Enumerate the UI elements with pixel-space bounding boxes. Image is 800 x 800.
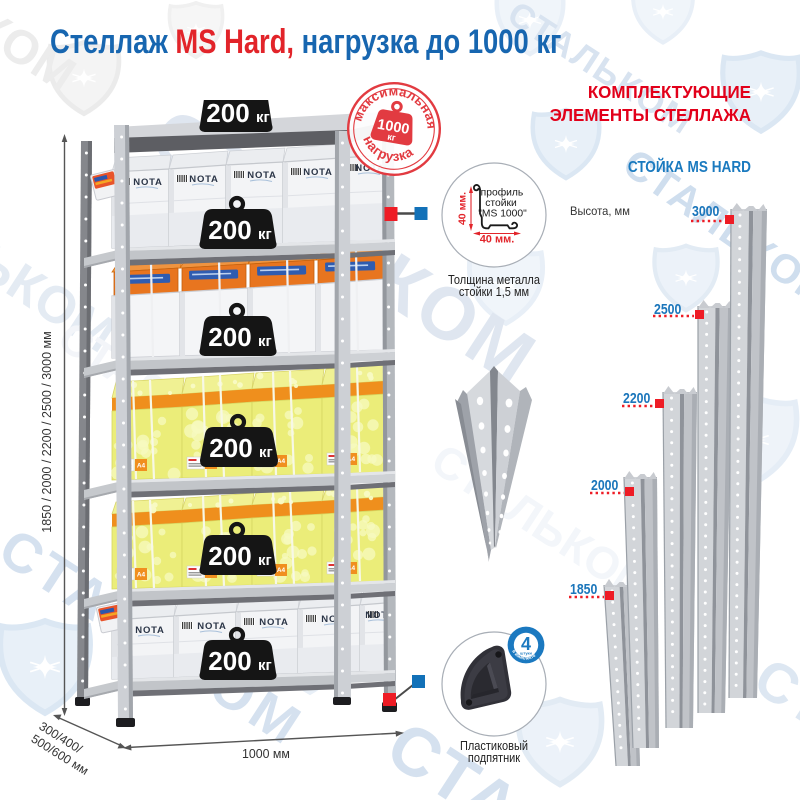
svg-text:кг: кг — [258, 333, 272, 350]
svg-text:профиль: профиль — [481, 187, 524, 199]
svg-text:NOTA: NOTA — [303, 167, 332, 178]
svg-text:кг: кг — [259, 444, 273, 461]
svg-text:"MS 1000": "MS 1000" — [478, 209, 527, 220]
svg-text:200: 200 — [206, 100, 249, 128]
svg-text:NOTA: NOTA — [197, 621, 226, 632]
svg-text:200: 200 — [208, 215, 251, 245]
svg-text:кг: кг — [258, 552, 272, 569]
svg-text:200: 200 — [208, 541, 251, 571]
svg-text:200: 200 — [208, 322, 251, 352]
svg-text:NOTA: NOTA — [189, 174, 218, 185]
svg-text:200: 200 — [208, 646, 251, 676]
svg-text:40 мм.: 40 мм. — [480, 234, 515, 246]
svg-text:А4: А4 — [277, 458, 286, 465]
svg-text:NOTA: NOTA — [135, 625, 164, 636]
svg-text:стойки: стойки — [485, 198, 517, 209]
svg-text:кг: кг — [258, 657, 272, 674]
svg-text:NOTA: NOTA — [133, 177, 162, 188]
svg-text:NOTA: NOTA — [247, 170, 276, 181]
svg-text:А4: А4 — [137, 463, 146, 470]
svg-text:NOTA: NOTA — [259, 617, 288, 628]
svg-text:А4: А4 — [137, 572, 146, 579]
svg-text:А4: А4 — [277, 567, 286, 574]
svg-text:кг: кг — [256, 109, 270, 126]
svg-text:200: 200 — [209, 433, 252, 463]
svg-text:40 мм.: 40 мм. — [457, 192, 469, 225]
svg-text:кг: кг — [258, 226, 272, 243]
